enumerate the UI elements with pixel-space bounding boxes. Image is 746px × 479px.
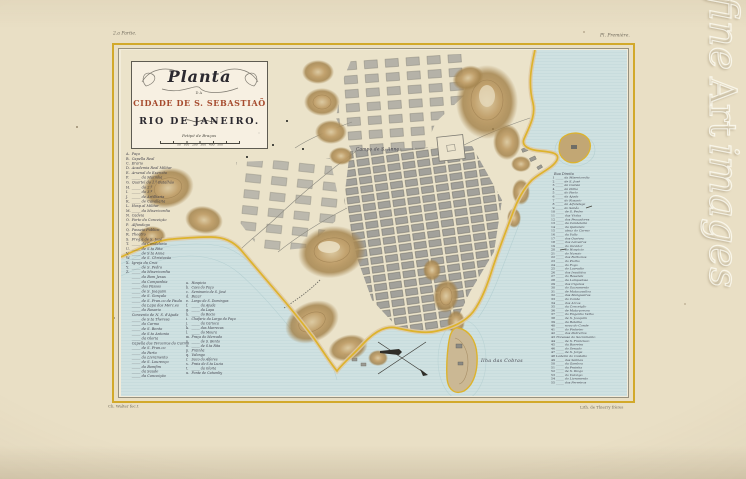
legend-text: _____ da Lapa dos Merc.es: [132, 303, 179, 307]
legend-text: Seminario de S. José: [192, 290, 226, 294]
legend-text: Valongo: [192, 353, 205, 357]
legend-text: Praia de S.ta Luzia: [192, 362, 224, 366]
legend-text: _____ do Bomfim: [132, 365, 161, 369]
scale-tick: 200: [191, 144, 197, 146]
legend-text: _____ das Marrecas: [192, 326, 224, 330]
legend-text: _____ de S.to Antonio: [132, 332, 169, 336]
legend-text: _____ da Carioca: [192, 322, 219, 326]
legend-text: Capella Real: [132, 157, 155, 161]
legend-text: _____ da Companhia: [132, 280, 168, 284]
legend-text: Forte da Conceição: [132, 218, 167, 222]
legend-text: _____ da Saude: [132, 370, 159, 374]
legend-text: _____ de S. Pedro: [132, 265, 162, 269]
legend-text: _____ da Gloria: [192, 367, 217, 371]
title-da: DA: [196, 92, 203, 94]
legend-text: _____ dos Passos: [132, 284, 161, 288]
legend-text: _____ do Bom Jesus: [132, 275, 166, 279]
legend-text: Saco do Alferes: [192, 358, 218, 362]
legend-row: u. Ponte de Catumby: [186, 371, 271, 376]
legend-text: Hosp.al Militar: [132, 204, 159, 208]
legend-text: Prainha: [192, 349, 205, 353]
legend-text: Freg.a de S. José: [132, 237, 162, 241]
watermark-word: Art: [701, 77, 744, 136]
title-flourish: Planta: [132, 62, 267, 91]
legend-text: _____ de S. Fran.co de Paula: [132, 299, 182, 303]
legend-text: Capella dos Terceiros do Carmo: [132, 341, 189, 345]
legend-text: _____ do Carmo: [132, 322, 159, 326]
legend-text: _____ de S. Christovão: [132, 256, 171, 260]
antique-map-photo: 2.a Partie. Pl. Première.: [0, 0, 746, 479]
legend-text: Passeio Publico: [132, 228, 160, 232]
scale-label: Petipé de Braças: [182, 134, 216, 137]
ilha-das-cobras: [447, 328, 477, 393]
title-cartouche: Planta DA CIDADE DE S. SEBASTIAÕ RIO DE …: [131, 61, 268, 149]
title-ornament: [180, 109, 220, 115]
map-title-city: CIDADE DE S. SEBASTIAÕ: [133, 98, 266, 108]
legend-text: _____ de S.ta Theresa: [132, 318, 170, 322]
legend-text: Paço: [132, 152, 140, 156]
legend-text: Erario: [132, 161, 143, 165]
map-title-script: Planta: [132, 67, 267, 86]
campo-square: [437, 135, 465, 162]
scale-tick: 100: [183, 144, 189, 146]
legend-text: Igreja da Cruz: [132, 261, 158, 265]
legend-places-column: a. Hospicio b. Caes do Paço c. Seminario…: [186, 281, 271, 376]
legend-text: Chafariz do Largo do Paço: [192, 317, 236, 321]
legend-text: Alfandega: [132, 223, 150, 227]
legend-text: Praça do Mercado: [192, 335, 223, 339]
legend-text: _____ da Ajuda: [192, 304, 216, 308]
legend-text: _____ da Conceição: [132, 374, 166, 378]
streets-legend-list: 1 _____ da Misericordia 2 _____ de S. Jo…: [551, 176, 631, 385]
castelo-summit: [318, 241, 340, 253]
legend-text: Cadeia: [132, 213, 144, 217]
legend-text: _____ da Marinha: [132, 176, 163, 180]
legend-text: _____ da Lapa: [192, 308, 215, 312]
engraver-imprint: Ch. Walter fec.t: [108, 404, 138, 408]
legend-text: _____ de S.ta Rita: [192, 344, 221, 348]
legend-text: Ponte de Catumby: [192, 371, 223, 375]
legend-text: Quartel do 1.º Batalhão: [132, 180, 174, 184]
legend-text: _____ dos Ferreiros: [556, 381, 586, 385]
legend-text: _____ do 3.º: [132, 190, 153, 194]
label-campo-de-s-anna: Campo de S. Anna: [356, 147, 399, 152]
legend-text: _____ de Artilharia: [132, 195, 165, 199]
legend-text: Theatro: [132, 232, 146, 236]
legend-text: _____ de S.ta Anna: [132, 251, 165, 255]
legend-text: Caes do Paço: [192, 286, 214, 290]
legend-text: _____ de S. Joaquim: [132, 289, 167, 293]
legend-text: _____ da Misericordia: [132, 270, 170, 274]
legend-text: Largo de S. Domingos: [192, 299, 229, 303]
legend-text: Bazar: [192, 295, 202, 299]
plate-number-label: Pl. Première.: [600, 33, 630, 38]
legend-text: _____ de S. Gonçalo: [132, 294, 167, 298]
scale-tick: 500: [217, 144, 223, 146]
paper-speck: [76, 126, 78, 128]
legend-text: _____ de S. Bento: [192, 340, 220, 344]
legend-text: _____ do Livramento: [132, 355, 168, 359]
legend-text: _____ da Misericordia: [132, 209, 170, 213]
legend-text: _____ do Moura: [192, 331, 217, 335]
scale-tick: 50: [177, 144, 181, 146]
legend-text: Hospicio: [192, 281, 207, 285]
legend-text: _____ de S. Bento: [132, 327, 162, 331]
scale-tick-numbers: 50100200300400500: [177, 144, 223, 146]
legend-text: _____ da Candelaria: [132, 242, 167, 246]
legend-text: _____ de S. Fran.co: [132, 346, 166, 350]
legend-text: _____ de Cavallaria: [132, 199, 166, 203]
legend-text: Convento de N. S. d'Ajuda: [132, 313, 179, 317]
label-ilha-das-cobras: Ilha das Cobras: [481, 358, 523, 363]
legend-text: _____ da Gloria: [132, 336, 158, 340]
watermark-word: images: [700, 143, 746, 287]
map-title-rio: RIO DE JANEIRO.: [139, 116, 260, 127]
lithographer-imprint: Lith. de Thierry frères: [580, 405, 623, 409]
legend-streets-column: Rua Direita 1 _____ da Misericordia 2 __…: [551, 172, 631, 385]
legend-text: _____ do 2.º: [132, 185, 153, 189]
legend-row: 55 _____ dos Ferreiros: [551, 381, 631, 385]
legend-text: _____ de S.ta Rita: [132, 247, 163, 251]
legend-text: _____ do Rosario: [132, 308, 161, 312]
fine-art-images-watermark: fine Art images: [696, 0, 746, 246]
legend-text: _____ do Parto: [132, 351, 157, 355]
paper-speck: [684, 303, 686, 305]
scale-tick: 400: [208, 144, 214, 146]
scale-tick: 300: [200, 144, 206, 146]
watermark-word: fine: [700, 0, 746, 70]
paper-speck: [583, 31, 585, 33]
legend-text: Arsenal do Exercito: [132, 171, 167, 175]
plate-part-label: 2.a Partie.: [113, 31, 136, 36]
legend-text: Academia Real Militar: [132, 166, 172, 170]
legend-text: _____ do Rocio: [192, 313, 216, 317]
legend-text: _____ de S. Lourenço: [132, 360, 169, 364]
